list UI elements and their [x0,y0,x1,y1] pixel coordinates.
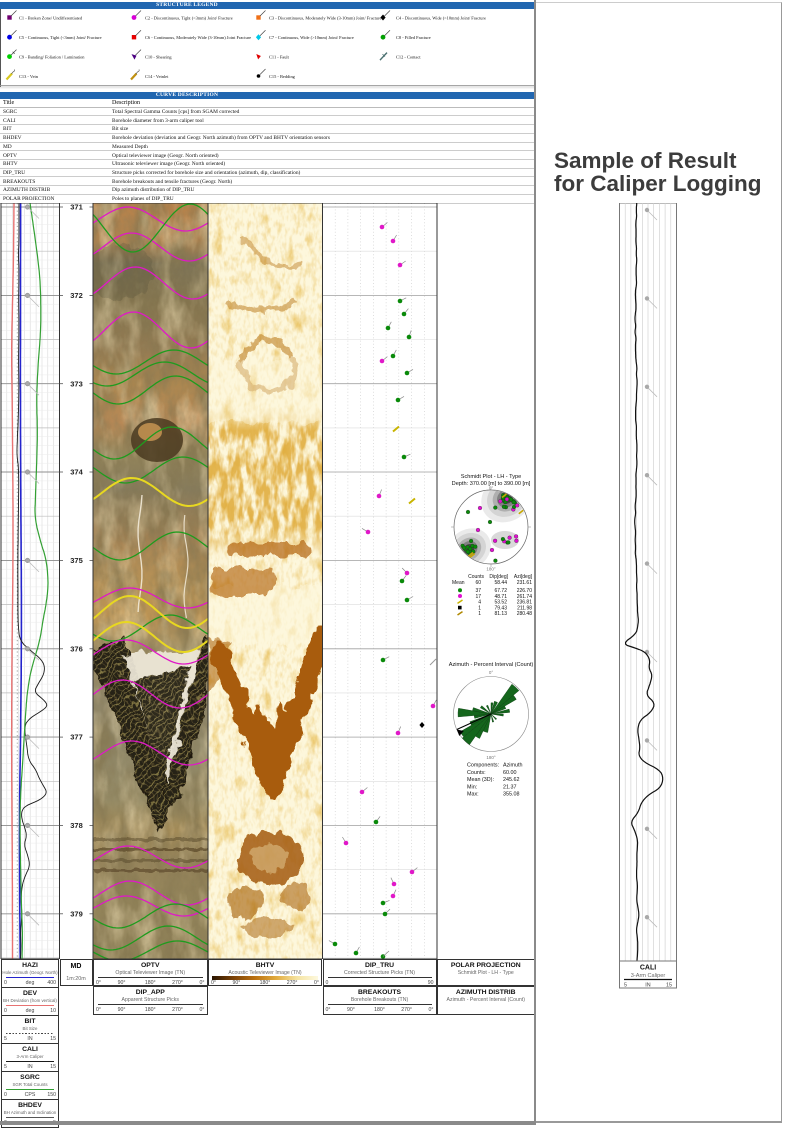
svg-text:379: 379 [70,909,83,918]
svg-text:C9 - Banding/ Foliation / Lami: C9 - Banding/ Foliation / Lamination [19,54,85,59]
svg-text:C13 - Vein: C13 - Vein [19,74,39,79]
svg-text:C7 - Continuous, Wide (>10mm): C7 - Continuous, Wide (>10mm) Joint/ Fra… [269,35,354,41]
svg-text:Schmidt Plot - LH - Type: Schmidt Plot - LH - Type [461,474,522,480]
svg-text:C14 - Veinlet: C14 - Veinlet [145,74,169,79]
svg-text:Min:: Min: [467,784,477,790]
svg-text:377: 377 [70,733,83,742]
svg-text:231.61: 231.61 [517,580,533,586]
svg-text:180°: 180° [486,567,496,572]
svg-text:376: 376 [70,644,83,653]
svg-text:60.00: 60.00 [503,770,517,776]
svg-text:C10 - Shearing: C10 - Shearing [145,54,172,59]
svg-text:245.62: 245.62 [503,777,520,783]
svg-text:81.13: 81.13 [494,611,507,617]
svg-text:Mean (3D):: Mean (3D): [467,777,494,783]
svg-text:C8 - Filled Fracture: C8 - Filled Fracture [396,35,431,40]
svg-text:Azimuth - Percent Interval (Co: Azimuth - Percent Interval (Count) [449,662,534,668]
svg-text:0°: 0° [489,670,494,675]
svg-text:1: 1 [478,611,481,617]
svg-text:C4 - Discontinuous, Wide (>10m: C4 - Discontinuous, Wide (>10mm) Joint/ … [396,15,486,21]
svg-text:280.48: 280.48 [517,611,533,617]
svg-text:21.37: 21.37 [503,784,517,790]
svg-text:C2 - Discontinuous, Tight (<3m: C2 - Discontinuous, Tight (<3mm) Joint/ … [145,15,233,21]
svg-text:373: 373 [70,379,83,388]
svg-text:C1 - Broken Zone/ Undifferenti: C1 - Broken Zone/ Undifferentiated [19,15,83,20]
svg-text:Mean: Mean [452,580,465,586]
svg-text:C12 - Contact: C12 - Contact [396,54,421,59]
svg-text:355.08: 355.08 [503,792,520,798]
svg-text:372: 372 [70,291,83,300]
svg-text:C5 - Continuous, Tight (<3mm): C5 - Continuous, Tight (<3mm) Joint/ Fra… [19,35,102,41]
svg-text:374: 374 [70,468,83,477]
svg-text:C3 - Discontinuous, Moderately: C3 - Discontinuous, Moderately Wide (3-1… [269,15,381,21]
svg-text:375: 375 [70,556,83,565]
svg-text:378: 378 [70,821,83,830]
svg-text:60: 60 [475,580,481,586]
svg-text:180°: 180° [486,755,496,760]
svg-text:Counts:: Counts: [467,770,486,776]
svg-text:Max:: Max: [467,792,479,798]
svg-text:C15 - Bedding: C15 - Bedding [269,74,296,79]
svg-text:371: 371 [70,203,83,212]
svg-text:C6 - Continuous, Moderately Wi: C6 - Continuous, Moderately Wide (3-10mm… [145,35,251,41]
svg-text:C11 - Fault: C11 - Fault [269,54,290,59]
svg-text:Components:: Components: [467,763,499,769]
svg-text:58.44: 58.44 [494,580,507,586]
svg-text:Azimuth: Azimuth [503,763,522,769]
